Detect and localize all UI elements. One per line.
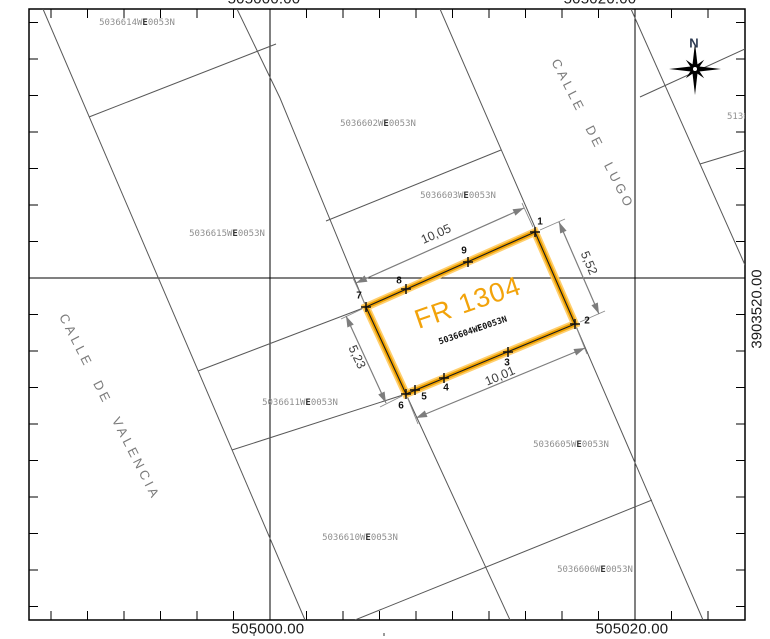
clipped-text-fragment [383,633,385,636]
division-line-1 [89,44,276,117]
vertex-number-2: 2 [584,316,590,327]
easting-label-top-right: 505020.00 [564,0,637,8]
division-line-7 [355,500,652,620]
parcel-ref-label: 5036605WE0053N [533,440,609,450]
dimension-arrowhead [591,303,599,314]
vertex-number-3: 3 [504,358,510,369]
dimension-arrowhead [559,222,567,233]
map-border [29,9,745,620]
parcel-ref-label: 5036602WE0053N [340,119,416,129]
parcel-ref-label: 5036615WE0053N [189,229,265,239]
easting-label-bottom-right: 505020.00 [596,621,669,638]
northing-label-right: 3903520.00 [749,269,766,348]
dimension-arrowhead [356,275,367,283]
dimension-extension-line [341,309,362,319]
division-line-2 [326,150,501,221]
dimension-extension-line [408,399,418,424]
parcel-ref-label-clipped: 5136 [727,112,745,120]
vertex-number-6: 6 [398,401,404,412]
vertex-number-4: 4 [443,383,449,394]
division-line-4 [700,150,746,164]
easting-label-top-left: 505000.00 [228,0,301,8]
dimension-extension-line [522,203,533,227]
street-line-valencia-west [43,9,305,620]
vertex-number-5: 5 [421,392,427,403]
parcel-ref-label: 5036614WE0053N [99,18,175,28]
cadastral-map: 505000.00 505020.00 505000.00 505020.00 … [0,0,770,639]
vertex-number-7: 7 [356,291,362,302]
easting-label-bottom-left: 505000.00 [232,621,305,638]
dimension-arrowhead [573,348,585,355]
street-line-lugo-east [631,9,745,265]
clipped-parcel-ref-box: 5136 [727,106,745,120]
vertex-number-9: 9 [461,246,467,257]
division-line-5 [198,307,366,371]
vertex-number-8: 8 [396,276,402,287]
parcel-ref-label: 5036606WE0053N [557,565,633,575]
dimension-arrowhead [416,411,428,418]
border-tick-marks [29,9,745,620]
dimension-arrowhead [513,208,524,216]
vertex-number-1: 1 [537,217,543,228]
north-compass-icon [669,43,721,95]
parcel-ref-label: 5036603WE0053N [420,191,496,201]
parcel-ref-label: 5036611WE0053N [262,398,338,408]
north-arrow-label: N [689,36,698,51]
parcel-ref-label: 5036610WE0053N [322,533,398,543]
map-canvas [0,0,770,639]
dimension-arrowhead [346,316,354,327]
